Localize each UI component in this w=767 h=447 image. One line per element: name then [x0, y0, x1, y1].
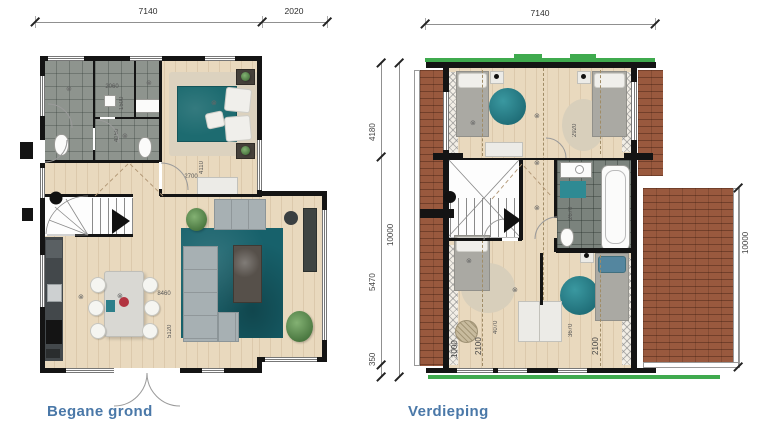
ground-floor-label: Begane grond [47, 403, 153, 420]
upper-floor-label: Verdieping [408, 403, 489, 420]
annotation-lines [0, 0, 767, 447]
floorplan-canvas: 7140 2020 7140 4180 10000 5470 350 10000… [0, 0, 767, 447]
